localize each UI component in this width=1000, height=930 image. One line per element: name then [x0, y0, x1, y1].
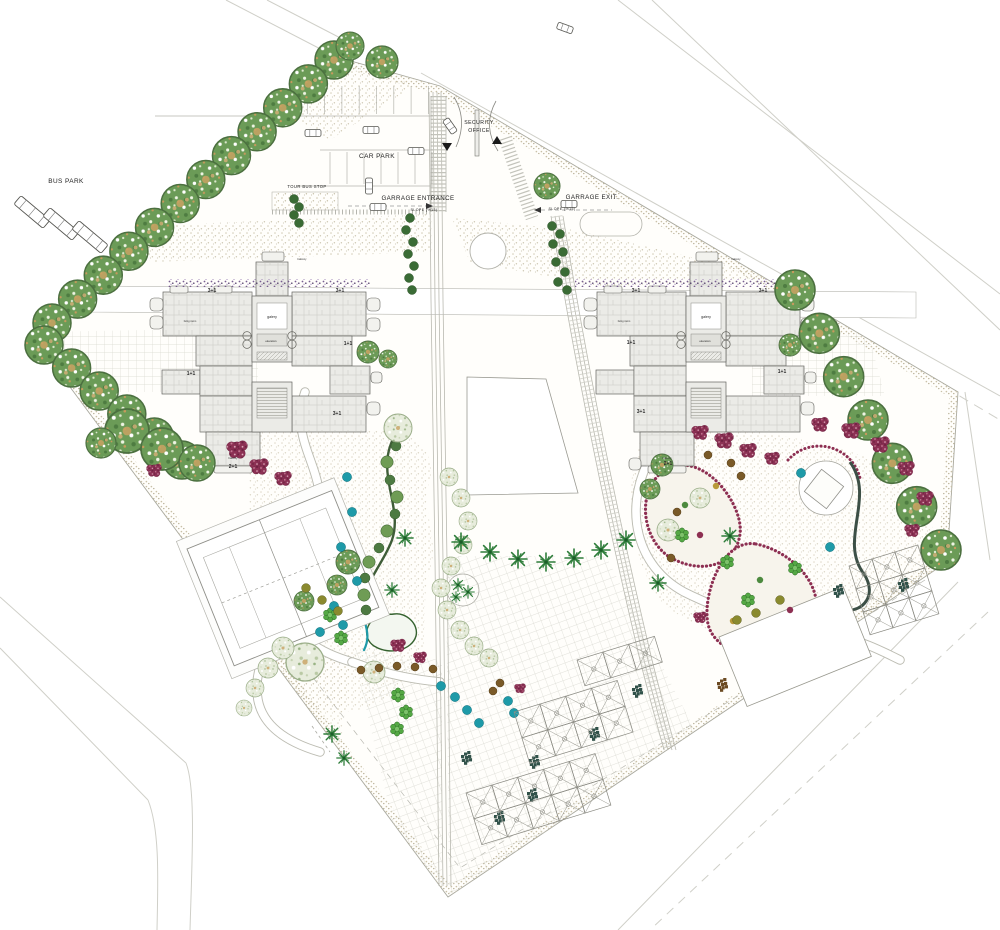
brown-shrub-icon [704, 451, 712, 459]
tree-icon [141, 428, 183, 470]
bright-shrub-icon [789, 561, 802, 575]
palm-tree-icon [481, 543, 499, 561]
slope-exit-label: SLOPE (%15) [549, 207, 576, 211]
hedge-shrub-icon [381, 525, 393, 537]
palm-tree-icon [324, 726, 340, 742]
tree-icon [336, 32, 364, 60]
pale-shrub-icon [459, 512, 477, 530]
shrub-icon [410, 262, 419, 271]
shrub-icon [549, 240, 558, 249]
unit-type-label: 3+1 [637, 409, 646, 415]
olive-shrub-icon [776, 596, 785, 605]
teal-shrub-icon [336, 542, 345, 551]
pale-shrub-icon [438, 601, 456, 619]
tree-icon [921, 530, 961, 570]
tree-icon [824, 357, 864, 397]
brown-shrub-icon [429, 665, 437, 673]
brown-shrub-icon [489, 687, 497, 695]
brown-shrub-icon [375, 664, 383, 672]
hedge-shrub-icon [363, 556, 375, 568]
unit-type-label: 3+1 [632, 288, 641, 294]
garage-entrance-label: GARRAGE ENTRANCE [381, 195, 454, 202]
hedge-shrub-icon [390, 509, 400, 519]
palm-tree-icon [537, 553, 555, 571]
palm-tree-icon [337, 751, 351, 765]
slope-entrance-label: SLOPE (%15) [411, 208, 438, 212]
room-label: living room [618, 319, 631, 323]
brown-shrub-icon [727, 459, 735, 467]
bright-shrub-icon [400, 705, 413, 719]
teal-shrub-icon [436, 681, 445, 690]
brown-shrub-icon [393, 662, 401, 670]
turnaround-circle [470, 233, 506, 269]
tour-bus-stop-label: TOUR BUS STOP [287, 184, 326, 189]
shrub-icon [409, 238, 418, 247]
tree-icon [86, 428, 116, 458]
unit-type-label: 1+1 [187, 371, 196, 377]
tree-icon [366, 46, 398, 78]
olive-shrub-icon [302, 584, 311, 593]
palm-tree-icon [385, 583, 399, 597]
hedge-shrub-icon [358, 589, 370, 601]
tree-icon [640, 479, 660, 499]
tree-icon [534, 173, 560, 199]
shrub-icon [554, 278, 563, 287]
palm-tree-icon [452, 533, 470, 551]
car-icon [305, 130, 321, 137]
bright-shrub-icon [392, 688, 405, 702]
olive-shrub-icon [733, 616, 742, 625]
shrub-icon [548, 222, 557, 231]
pale-shrub-icon [480, 649, 498, 667]
tour-bus-platform [272, 192, 338, 210]
shrub-icon [290, 195, 299, 204]
teal-shrub-icon [342, 472, 351, 481]
olive-shrub-icon [334, 607, 343, 616]
site-plan-page: 3+13+11+11+13+12+13+13+11+11+13+12+1 bal… [0, 0, 1000, 930]
brown-shrub-icon [673, 508, 681, 516]
car-icon [370, 204, 386, 211]
pale-shrub-icon [442, 557, 460, 575]
hedge-shrub-icon [381, 456, 393, 468]
palm-tree-icon [509, 550, 527, 568]
teal-shrub-icon [462, 705, 471, 714]
shrub-icon [295, 219, 304, 228]
bright-shrub-icon [721, 555, 734, 569]
pale-shrub-icon [440, 468, 458, 486]
brown-shrub-icon [667, 554, 675, 562]
tree-icon [294, 591, 314, 611]
shrub-icon [295, 203, 304, 212]
elevators-label-west: elevators [265, 339, 277, 343]
shrub-icon [402, 226, 411, 235]
room-label: balcony [663, 456, 673, 460]
pale-shrub-icon [452, 489, 470, 507]
teal-shrub-icon [315, 627, 324, 636]
unit-type-label: 3+1 [333, 411, 342, 417]
tree-icon [379, 350, 397, 368]
palm-tree-icon [565, 549, 583, 567]
car-icon [366, 178, 373, 194]
pale-shrub-icon [432, 579, 450, 597]
palm-tree-icon [592, 541, 610, 559]
palm-tree-icon [451, 592, 462, 603]
tree-icon [357, 341, 379, 363]
pale-tree-icon [236, 700, 252, 716]
shrub-icon [404, 250, 413, 259]
hedge-shrub-icon [374, 543, 384, 553]
unit-type-label: 3+1 [336, 288, 345, 294]
teal-shrub-icon [352, 576, 361, 585]
shrub-icon [406, 214, 415, 223]
teal-shrub-icon [825, 542, 834, 551]
brown-shrub-icon [737, 472, 745, 480]
tree-icon [779, 334, 801, 356]
shrub-icon [559, 248, 568, 257]
hedge-shrub-icon [361, 605, 371, 615]
pale-tree-icon [363, 661, 385, 683]
room-label: balcony [229, 456, 239, 460]
teal-shrub-icon [503, 696, 512, 705]
pale-shrub-icon [465, 637, 483, 655]
room-label: balcony [732, 257, 742, 261]
bed-plant-icon [713, 483, 719, 489]
teal-shrub-icon [347, 507, 356, 516]
tree-icon [327, 575, 347, 595]
olive-shrub-icon [752, 609, 761, 618]
bus-park-label: BUS PARK [48, 178, 84, 185]
gallery-label-west: galery [267, 315, 277, 319]
pale-tree-icon [246, 679, 264, 697]
shrub-icon [290, 211, 299, 220]
unit-type-label: 3+1 [208, 288, 217, 294]
room-label: balcony [298, 257, 308, 261]
shrub-icon [563, 286, 572, 295]
room-label: living room [184, 319, 197, 323]
unit-type-label: 1+1 [778, 369, 787, 375]
unit-type-label: 3+1 [759, 288, 768, 294]
brown-shrub-icon [357, 666, 365, 674]
tree-icon [179, 445, 215, 481]
shrub-icon [408, 286, 417, 295]
shrub-icon [552, 258, 561, 267]
site-plan-drawing: 3+13+11+11+13+12+13+13+11+11+13+12+1 bal… [0, 0, 1000, 930]
palm-tree-icon [462, 586, 475, 599]
teal-shrub-icon [796, 468, 805, 477]
security-office-label-line2: OFFICE [468, 128, 490, 134]
bright-shrub-icon [742, 593, 755, 607]
unit-type-label: 1+1 [627, 340, 636, 346]
car-park-label: CAR PARK [359, 153, 395, 160]
brown-shrub-icon [496, 679, 504, 687]
bright-shrub-icon [391, 722, 404, 736]
pale-tree-icon [258, 658, 278, 678]
pale-tree-icon [690, 488, 710, 508]
unit-type-label: 2+1 [664, 461, 673, 467]
palm-tree-icon [650, 575, 666, 591]
car-icon [408, 148, 424, 155]
unit-type-label: 1+1 [344, 341, 353, 347]
olive-shrub-icon [318, 596, 327, 605]
teal-shrub-icon [450, 692, 459, 701]
pale-tree-icon [384, 414, 412, 442]
bed-plant-icon [682, 502, 688, 508]
teal-shrub-icon [338, 620, 347, 629]
hedge-shrub-icon [391, 491, 403, 503]
gallery-label-east: galery [701, 315, 711, 319]
unit-type-label: 2+1 [229, 464, 238, 470]
teal-shrub-icon [474, 718, 483, 727]
bed-plant-icon [697, 532, 703, 538]
palm-tree-icon [722, 528, 738, 544]
hedge-shrub-icon [391, 441, 401, 451]
tree-icon [336, 550, 360, 574]
shrub-icon [556, 230, 565, 239]
tree-icon [799, 313, 839, 353]
bright-shrub-icon [335, 631, 348, 645]
hedge-shrub-icon [385, 475, 395, 485]
tree-icon [775, 270, 815, 310]
car-icon [363, 127, 379, 134]
shrub-icon [561, 268, 570, 277]
garage-exit-label: GARRAGE EXIT. [566, 194, 619, 201]
security-office-label-line1: SECURITY [464, 120, 494, 126]
palm-tree-icon [452, 579, 465, 592]
palm-tree-icon [397, 530, 413, 546]
palm-tree-icon [617, 531, 635, 549]
elevators-label-east: elevators [699, 339, 711, 343]
bed-plant-icon [757, 577, 763, 583]
pale-tree-icon [272, 637, 294, 659]
brown-shrub-icon [411, 663, 419, 671]
shrub-icon [405, 274, 414, 283]
bed-plant-icon [787, 607, 793, 613]
pale-shrub-icon [451, 621, 469, 639]
bright-shrub-icon [676, 528, 689, 542]
